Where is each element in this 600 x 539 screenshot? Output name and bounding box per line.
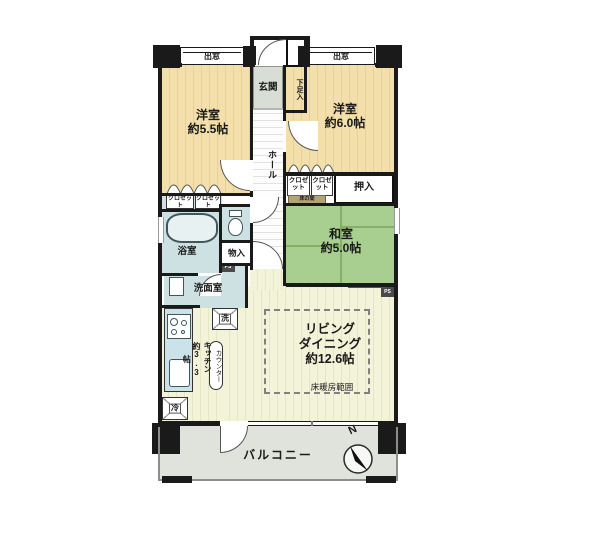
bay-flank-block: [243, 46, 256, 65]
corner-pillar: [152, 423, 180, 454]
room-name: リビング: [305, 322, 355, 336]
washer-box: 洗: [212, 308, 238, 330]
room-size: 約12.6帖: [305, 352, 354, 366]
wall: [286, 203, 394, 206]
room-living-label: リビング ダイニング 約12.6帖: [280, 322, 380, 367]
balcony-rail: [158, 479, 398, 481]
compass-icon: [340, 428, 380, 478]
floor-heating-label: 床暖房範囲: [296, 382, 368, 392]
wall: [286, 283, 394, 287]
bath-window: [158, 217, 164, 243]
closet-label: クロゼット: [312, 177, 332, 192]
closet-label: クロゼット: [168, 196, 192, 209]
toilet-bowl-icon: [228, 218, 243, 236]
room-name: ダイニング: [299, 337, 362, 351]
room-name: 和室: [329, 227, 353, 241]
hall-label: ホール: [259, 143, 277, 187]
closet-label: クロゼット: [288, 177, 309, 192]
bay-window-label: 出窓: [186, 52, 238, 62]
wall: [219, 204, 252, 207]
bathtub-icon: [166, 213, 218, 243]
closet-label: クロゼット: [196, 196, 220, 209]
japanese-room-window: [394, 208, 400, 234]
balcony-corner-tick: [162, 476, 192, 483]
wall: [245, 263, 248, 308]
corner-pillar: [376, 45, 402, 68]
room-west2-label: 洋室 約6.0帖: [306, 102, 384, 131]
wall: [283, 110, 307, 113]
room-size: 約5.0帖: [321, 241, 362, 255]
bay-window-label: 出窓: [314, 52, 368, 62]
toilet-tank-icon: [229, 210, 242, 217]
balcony-rail: [396, 427, 398, 481]
fridge-box: 冷: [162, 397, 188, 420]
counter-label: カウンター: [212, 346, 221, 386]
room-west1-label: 洋室 約5.5帖: [172, 108, 244, 137]
stove-burner: [171, 329, 177, 335]
corner-pillar: [378, 423, 406, 454]
oshiire-label: 押入: [338, 182, 390, 194]
corner-pillar: [153, 45, 180, 68]
living-balcony-window-mullion: [311, 421, 313, 426]
living-floor-upper: [250, 268, 284, 290]
stove-burner: [181, 330, 185, 334]
stove-burner: [170, 318, 178, 326]
entrance-label: 玄関: [254, 82, 282, 93]
washroom-label: 洗面室: [185, 283, 231, 294]
storage-label: 物入: [225, 248, 248, 258]
door-opening: [250, 160, 253, 191]
wall: [158, 209, 222, 212]
wall: [158, 63, 162, 427]
room-name: 洋室: [333, 102, 357, 116]
washer-label: 洗: [219, 314, 231, 325]
tokonoma-label: 床の間: [290, 197, 324, 202]
bath-label: 浴室: [172, 246, 202, 257]
wall: [394, 63, 398, 427]
balcony-label: バルコニー: [238, 448, 318, 462]
room-size: 約5.5帖: [188, 122, 229, 136]
kitchen-sink-icon: [169, 359, 190, 387]
fridge-label: 冷: [169, 403, 181, 414]
kitchen-name-label: キッチン: [200, 336, 212, 378]
kitchen-size-label: 約3.3帖: [189, 339, 201, 379]
meter-box-label: MB: [288, 41, 304, 65]
balcony-rail: [158, 427, 160, 481]
shoe-cabinet-label: 下足入: [289, 69, 303, 109]
room-size: 約6.0帖: [325, 116, 366, 130]
room-name: 洋室: [196, 108, 220, 122]
room-japanese-label: 和室 約5.0帖: [312, 227, 370, 256]
wall: [158, 305, 200, 308]
door-opening: [283, 121, 286, 152]
stove-icon: [167, 314, 191, 339]
wall: [219, 240, 252, 243]
pipe-space-box: PS: [381, 287, 394, 297]
washstand-icon: [169, 277, 184, 296]
stove-burner: [181, 320, 187, 326]
floor-plan: 洗 冷 PS PS: [0, 0, 600, 539]
entrance-step-line: [253, 108, 283, 110]
wall: [286, 172, 398, 176]
